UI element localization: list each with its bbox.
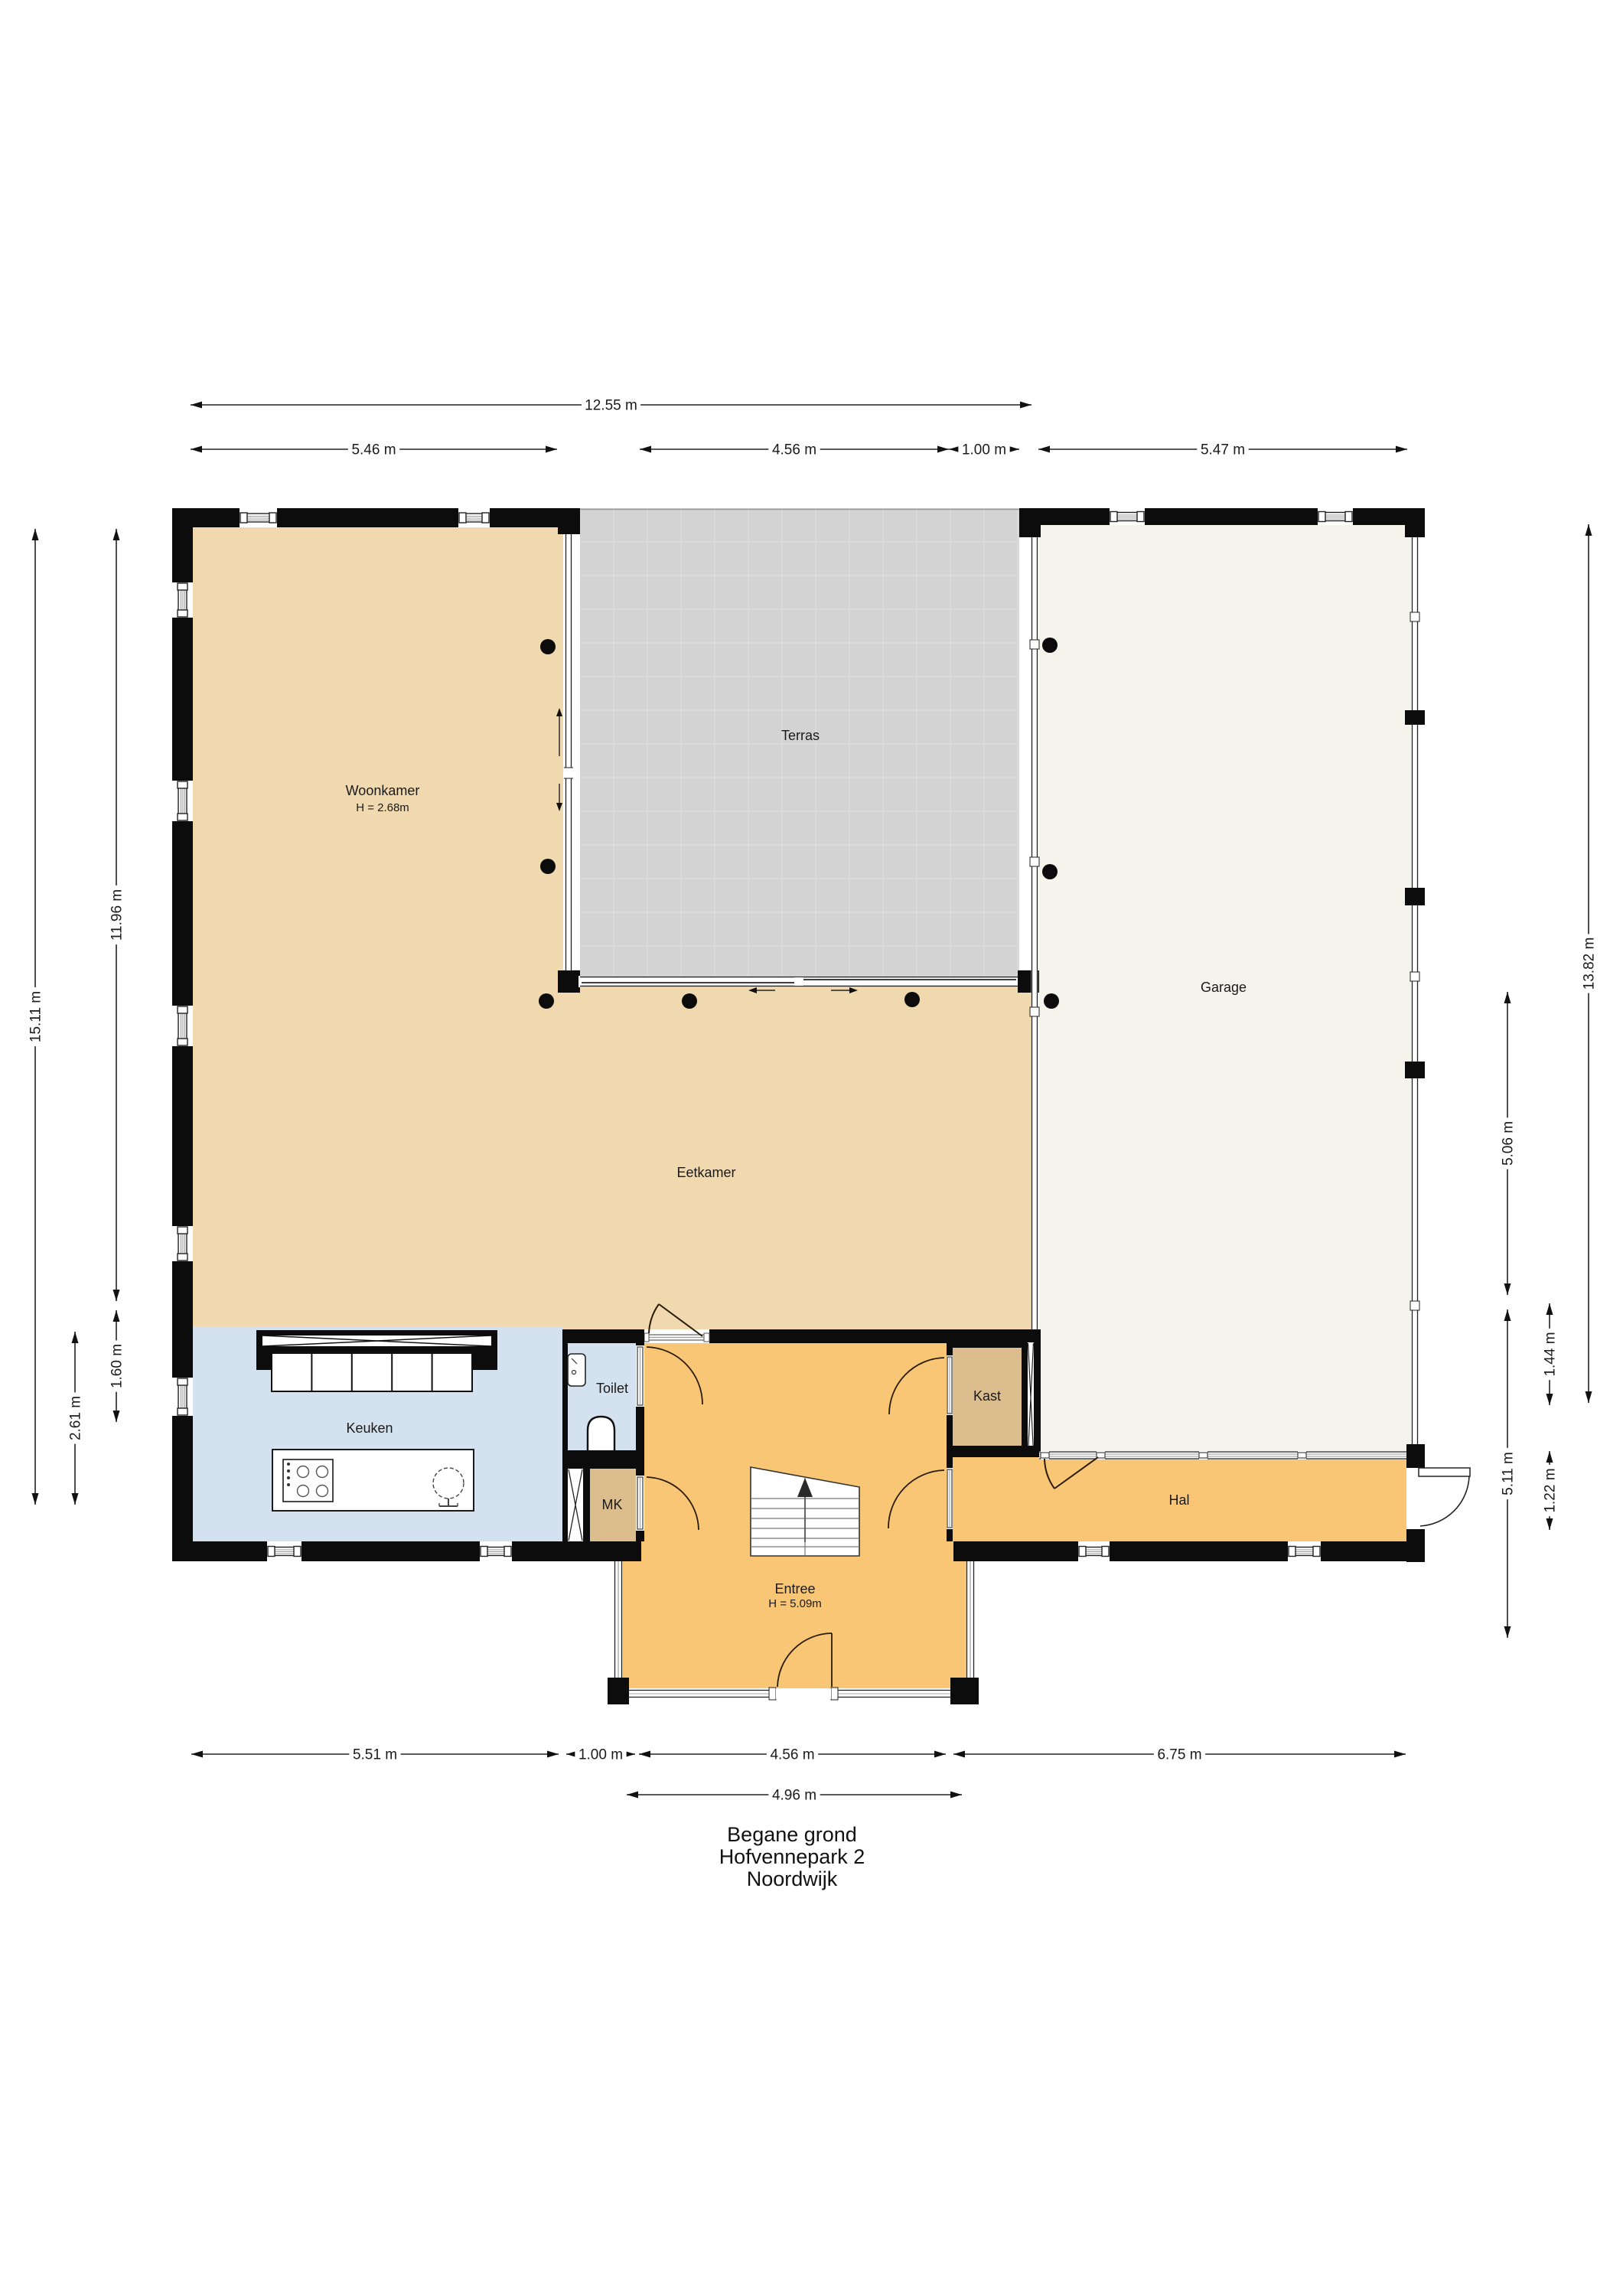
svg-text:Woonkamer: Woonkamer [346, 783, 420, 798]
svg-text:6.75 m: 6.75 m [1157, 1746, 1201, 1763]
svg-text:Keuken: Keuken [346, 1420, 393, 1436]
svg-text:1.22 m: 1.22 m [1542, 1468, 1558, 1512]
svg-text:4.56 m: 4.56 m [772, 442, 816, 458]
svg-text:Begane grond: Begane grond [727, 1823, 857, 1846]
svg-text:15.11 m: 15.11 m [28, 991, 44, 1042]
svg-text:12.55 m: 12.55 m [585, 397, 637, 413]
svg-text:Terras: Terras [781, 728, 820, 743]
svg-text:Noordwijk: Noordwijk [747, 1867, 838, 1890]
svg-text:Hofvennepark 2: Hofvennepark 2 [719, 1845, 865, 1868]
svg-text:1.60 m: 1.60 m [109, 1344, 125, 1388]
svg-text:Eetkamer: Eetkamer [676, 1165, 735, 1180]
svg-text:Entree: Entree [774, 1581, 815, 1596]
svg-text:5.46 m: 5.46 m [351, 442, 396, 458]
svg-text:11.96 m: 11.96 m [109, 889, 125, 941]
svg-text:5.51 m: 5.51 m [353, 1746, 397, 1763]
svg-text:Garage: Garage [1201, 980, 1247, 995]
svg-text:Toilet: Toilet [596, 1381, 628, 1396]
svg-text:H = 2.68m: H = 2.68m [356, 801, 409, 814]
svg-text:H = 5.09m: H = 5.09m [768, 1597, 822, 1610]
svg-text:4.56 m: 4.56 m [770, 1746, 814, 1763]
svg-text:Kast: Kast [973, 1388, 1001, 1404]
svg-text:5.47 m: 5.47 m [1201, 442, 1245, 458]
svg-text:1.00 m: 1.00 m [578, 1746, 623, 1763]
svg-text:Hal: Hal [1168, 1492, 1189, 1508]
svg-text:13.82 m: 13.82 m [1581, 938, 1597, 990]
svg-text:2.61 m: 2.61 m [67, 1396, 83, 1440]
svg-text:MK: MK [602, 1497, 623, 1512]
svg-text:4.96 m: 4.96 m [772, 1787, 816, 1803]
svg-text:1.44 m: 1.44 m [1542, 1332, 1558, 1376]
svg-text:5.06 m: 5.06 m [1500, 1121, 1516, 1166]
svg-text:1.00 m: 1.00 m [962, 442, 1006, 458]
svg-text:5.11 m: 5.11 m [1500, 1452, 1516, 1495]
